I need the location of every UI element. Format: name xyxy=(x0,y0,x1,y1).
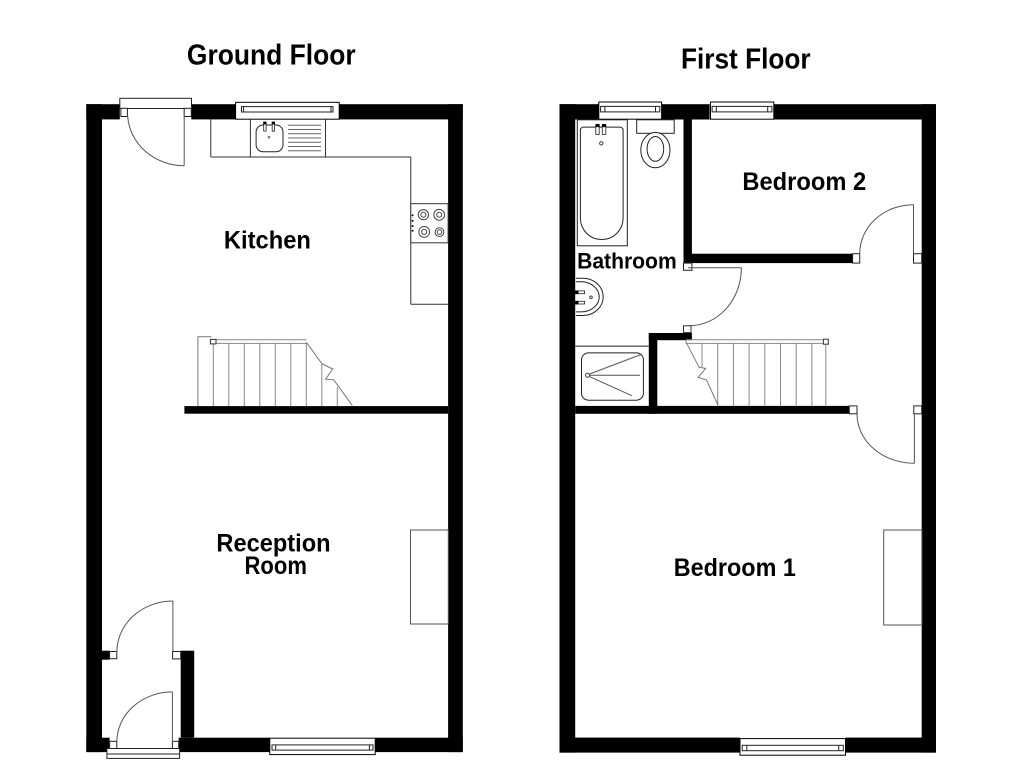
svg-text:Bedroom 2: Bedroom 2 xyxy=(742,168,866,196)
svg-text:Bathroom: Bathroom xyxy=(577,249,677,274)
svg-text:First Floor: First Floor xyxy=(681,44,811,76)
svg-text:Room: Room xyxy=(245,552,307,580)
svg-text:Kitchen: Kitchen xyxy=(224,227,311,255)
svg-text:Bedroom 1: Bedroom 1 xyxy=(674,554,796,582)
svg-text:Ground Floor: Ground Floor xyxy=(187,40,356,72)
